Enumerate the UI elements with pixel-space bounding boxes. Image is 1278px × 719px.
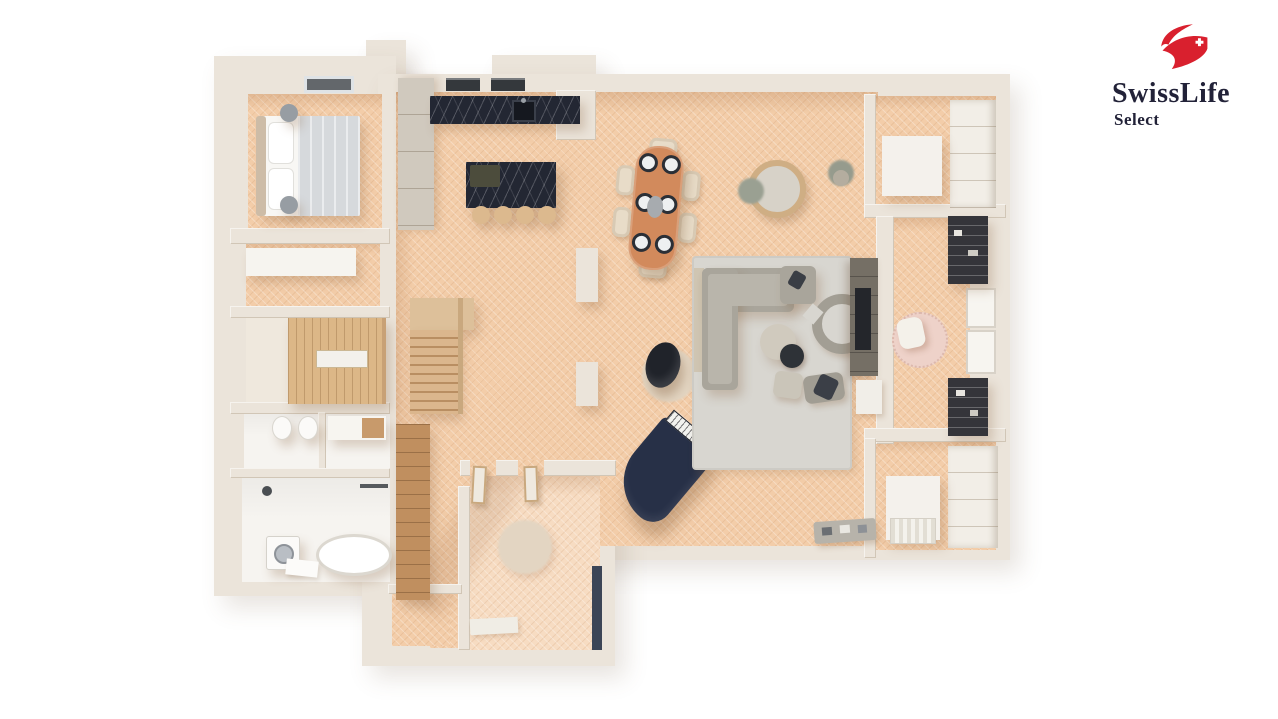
shoes — [858, 524, 868, 533]
wall-wc-vanity — [318, 412, 326, 472]
shelf-item — [954, 230, 962, 236]
stair-railing — [458, 298, 463, 414]
swisslife-logo: SwissLife Select — [1112, 20, 1252, 130]
tv-screen — [855, 288, 871, 350]
bar-stool — [516, 206, 534, 224]
sauna-wall-rail — [382, 318, 386, 404]
kitchen-tall-cabinets — [398, 78, 434, 230]
bed-pillow — [268, 122, 294, 164]
towel-rail — [360, 484, 388, 488]
bar-stool — [472, 206, 490, 224]
interior-door — [471, 466, 487, 505]
bookshelf — [948, 216, 988, 284]
potted-plant — [738, 178, 764, 204]
coffee-table-dark — [780, 344, 804, 368]
wall-shadow — [248, 94, 382, 110]
bathtub — [316, 534, 392, 576]
wall-entry-inner — [458, 486, 470, 650]
interior-door — [523, 466, 538, 502]
shoes — [840, 525, 851, 534]
logo-brand: SwissLife — [1112, 80, 1252, 108]
right-wall-window — [966, 330, 996, 374]
island-tray — [470, 165, 500, 187]
pillar — [576, 362, 598, 406]
right-wall-window — [966, 288, 996, 328]
bidet — [298, 416, 318, 440]
wall-bedroom-dressing — [230, 228, 390, 244]
shoes — [822, 527, 833, 536]
pouf — [772, 370, 803, 400]
nightstand-stool — [280, 196, 298, 214]
bookshelf — [948, 378, 988, 436]
bar-stool — [538, 206, 556, 224]
logo-sub: Select — [1114, 110, 1252, 130]
shelf-item — [956, 390, 965, 396]
shower-head — [262, 486, 272, 496]
stair-landing — [410, 298, 474, 330]
kitchen-window — [446, 78, 480, 91]
sideboard — [856, 380, 882, 414]
pillar — [576, 248, 598, 302]
hall-closet — [396, 424, 430, 600]
bar-stool — [494, 206, 512, 224]
shelf-item — [968, 250, 978, 256]
kitchen-counter — [430, 96, 580, 124]
wardrobe — [948, 446, 998, 548]
toilet — [272, 416, 292, 440]
shelf-item — [970, 410, 978, 416]
logo-flag-icon — [1148, 20, 1214, 76]
closet-panel — [882, 136, 942, 196]
vanity-wood-drawer — [362, 418, 384, 438]
sofa-cushions — [708, 274, 732, 384]
kitchen-window — [491, 78, 525, 91]
entry-rug — [498, 520, 552, 574]
bed-blanket — [298, 116, 360, 216]
wardrobe — [950, 100, 996, 208]
radiator — [890, 518, 936, 544]
dining-chair — [677, 212, 698, 243]
bedroom-window — [304, 76, 354, 93]
bath-mat — [285, 558, 318, 577]
dining-chair — [681, 170, 702, 201]
kitchen-sink — [512, 100, 536, 122]
wall-dressing-sauna — [230, 306, 390, 318]
long-dresser — [246, 248, 356, 276]
front-door — [592, 566, 602, 650]
shoe-bench — [813, 518, 876, 544]
dining-group — [608, 135, 704, 282]
nightstand-stool — [280, 104, 298, 122]
doormat — [470, 617, 519, 635]
plant-pot — [833, 170, 849, 186]
wall-top-right-room-left — [864, 94, 876, 216]
bed-headboard — [256, 116, 266, 216]
floor-plan-render: SwissLife Select — [0, 0, 1278, 719]
wall-vanity-bathroom — [230, 468, 390, 478]
staircase-steps — [410, 330, 458, 414]
kitchen-faucet — [521, 98, 526, 103]
sauna-glass-front — [316, 350, 368, 368]
